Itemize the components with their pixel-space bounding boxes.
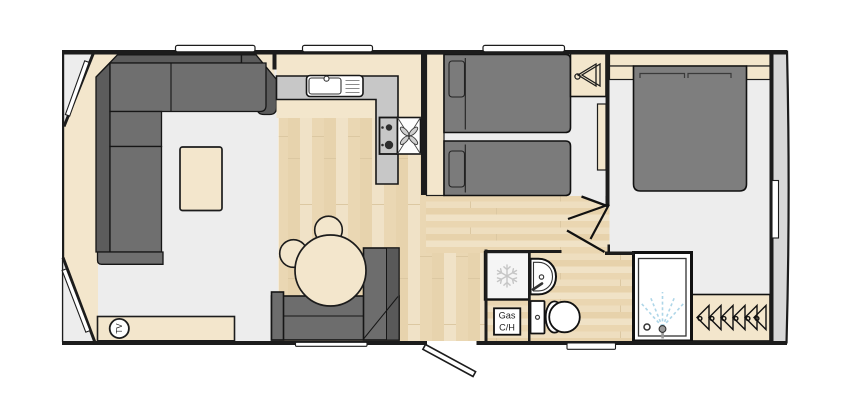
svg-text:C/H: C/H: [499, 323, 515, 333]
svg-text:Gas: Gas: [499, 311, 516, 321]
svg-text:TV: TV: [115, 323, 124, 334]
